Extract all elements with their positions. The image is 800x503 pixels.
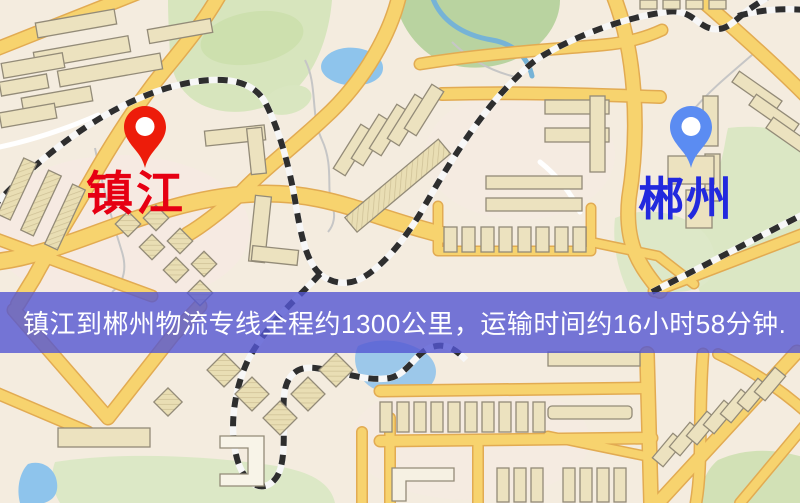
origin-city-label: 镇江 bbox=[86, 172, 186, 219]
origin-pin-icon[interactable] bbox=[124, 106, 166, 168]
route-info-text: 镇江到郴州物流专线全程约1300公里，运输时间约16小时58分钟. bbox=[0, 304, 786, 341]
destination-pin-body[interactable] bbox=[670, 106, 712, 168]
destination-pin-hole bbox=[682, 117, 701, 136]
route-info-banner: 镇江到郴州物流专线全程约1300公里，运输时间约16小时58分钟. bbox=[0, 292, 800, 353]
destination-city-label: 郴州 bbox=[638, 177, 734, 223]
origin-pin-hole bbox=[136, 117, 155, 136]
destination-pin-icon[interactable] bbox=[670, 106, 712, 168]
origin-pin-body[interactable] bbox=[124, 106, 166, 168]
logistics-route-map: 镇江 郴州 镇江到郴州物流专线全程约1300公里，运输时间约16小时58分钟. bbox=[0, 0, 800, 503]
map-canvas bbox=[0, 0, 800, 503]
